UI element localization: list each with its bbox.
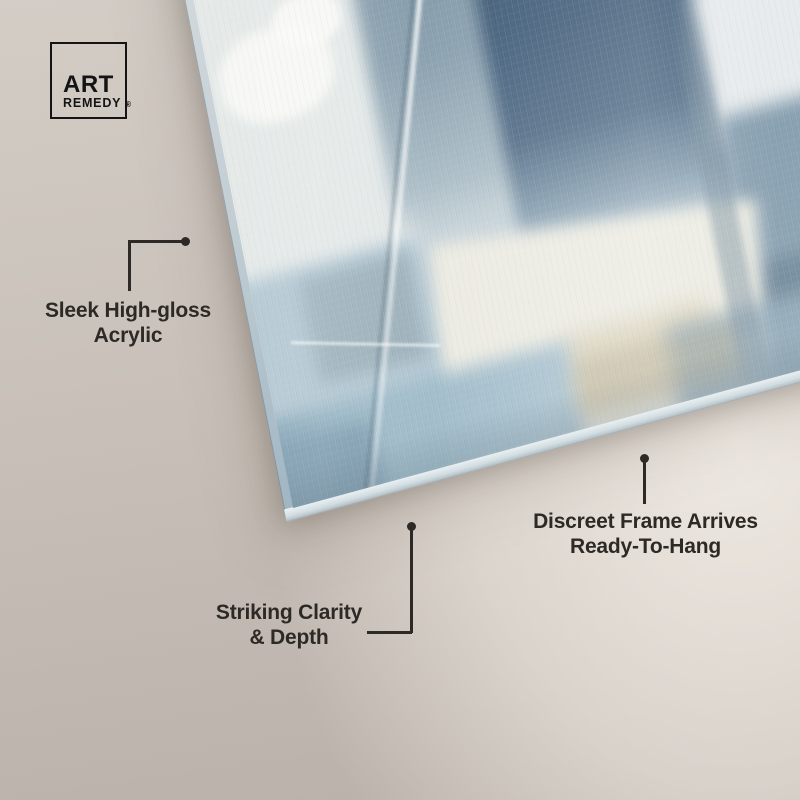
callout-clarity-label-line1: Striking Clarity <box>179 601 399 626</box>
paint-seam-shadow-line <box>364 0 416 492</box>
registered-trademark-icon: ® <box>125 100 131 109</box>
callout-clarity-label-line2: & Depth <box>179 626 399 651</box>
paint-region-dark-slate-square <box>444 0 743 271</box>
paint-region-blue-right <box>717 57 800 376</box>
paint-region-white-impasto-blob-small <box>268 0 346 56</box>
brand-logo-name-top: ART <box>63 74 125 96</box>
paint-seam-horizontal-line <box>291 341 440 347</box>
callout-frame-label-line2: Ready-To-Hang <box>523 535 768 560</box>
brushstroke-texture-vertical <box>162 0 800 508</box>
callout-frame-label-line1: Discreet Frame Arrives <box>523 510 768 535</box>
callout-frame-label: Discreet Frame Arrives Ready-To-Hang <box>523 510 768 559</box>
paint-region-slate-blue-band <box>342 0 525 243</box>
callout-acrylic-leader-line-horizontal <box>128 240 184 243</box>
artwork-painting-face <box>162 0 800 508</box>
callout-acrylic-label: Sleek High-gloss Acrylic <box>18 299 238 348</box>
paint-seam-highlight-line <box>370 0 424 490</box>
callout-acrylic-leader-line-vertical <box>128 240 131 291</box>
callout-frame-leader-line-vertical <box>643 458 646 504</box>
artwork-canvas <box>162 0 800 508</box>
paint-region-gray-blue-patch <box>299 252 427 385</box>
paint-seam-right-ridge <box>670 6 772 398</box>
product-annotation-image: ART REMEDY ® Sleek High-gloss Acrylic St… <box>0 0 800 800</box>
callout-acrylic-label-line2: Acrylic <box>18 324 238 349</box>
brand-logo-name-row: REMEDY ® <box>63 96 125 110</box>
acrylic-gloss-sheen <box>162 0 800 508</box>
brand-logo-name-bottom: REMEDY <box>63 96 121 110</box>
callout-clarity-leader-line-vertical <box>410 526 413 633</box>
callout-acrylic-label-line1: Sleek High-gloss <box>18 299 238 324</box>
brushstroke-texture-horizontal <box>162 0 800 508</box>
paint-region-white-impasto-blob <box>212 14 341 134</box>
paint-region-blue-right-dark-patch <box>751 241 800 336</box>
callout-clarity-label: Striking Clarity & Depth <box>179 601 399 650</box>
paint-region-pale-top-right <box>689 0 800 146</box>
brand-logo: ART REMEDY ® <box>50 42 127 119</box>
paint-region-ivory-center <box>430 199 773 489</box>
